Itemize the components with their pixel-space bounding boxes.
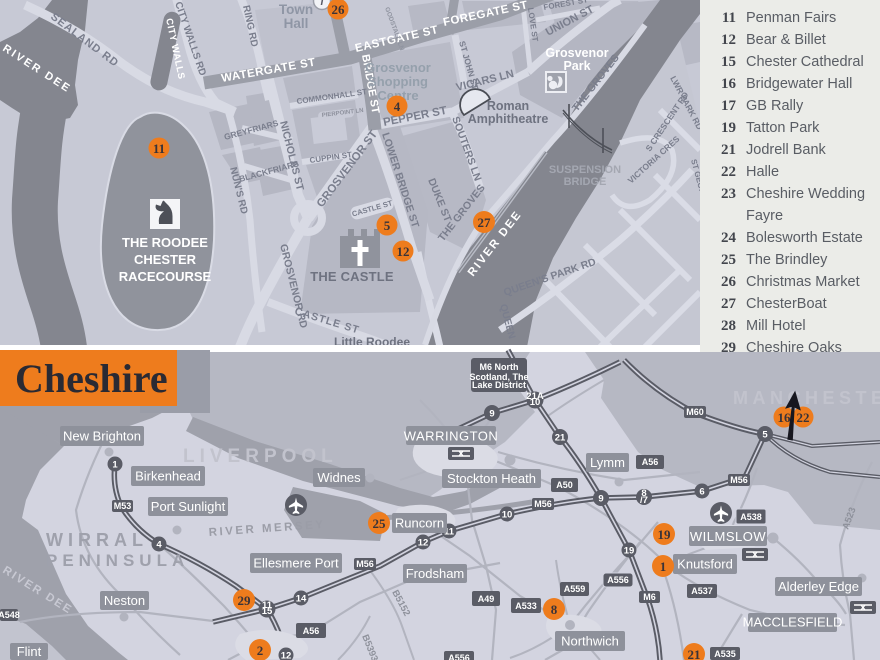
svg-text:The Brindley: The Brindley bbox=[746, 252, 828, 268]
svg-text:Tatton Park: Tatton Park bbox=[746, 120, 820, 136]
svg-text:THE ROODEE: THE ROODEE bbox=[122, 235, 208, 250]
svg-text:9: 9 bbox=[489, 409, 494, 420]
svg-text:4: 4 bbox=[394, 99, 401, 114]
svg-text:1: 1 bbox=[660, 559, 667, 574]
svg-text:5: 5 bbox=[384, 218, 391, 233]
svg-text:19: 19 bbox=[624, 546, 635, 557]
svg-text:A556: A556 bbox=[607, 575, 629, 585]
svg-text:Ellesmere Port: Ellesmere Port bbox=[253, 556, 339, 571]
svg-text:Bear & Billet: Bear & Billet bbox=[746, 32, 826, 48]
svg-text:WILMSLOW: WILMSLOW bbox=[690, 529, 766, 544]
svg-text:A548: A548 bbox=[0, 610, 20, 620]
svg-text:Bridgewater Hall: Bridgewater Hall bbox=[746, 76, 852, 92]
svg-text:Amphitheatre: Amphitheatre bbox=[468, 112, 549, 126]
svg-text:26: 26 bbox=[332, 2, 346, 17]
svg-text:4: 4 bbox=[156, 540, 162, 551]
svg-text:12: 12 bbox=[721, 32, 736, 48]
svg-text:M56: M56 bbox=[730, 475, 748, 485]
svg-text:15: 15 bbox=[262, 606, 273, 617]
svg-text:A49: A49 bbox=[478, 594, 495, 604]
svg-text:14: 14 bbox=[296, 594, 307, 605]
svg-text:6: 6 bbox=[699, 487, 704, 498]
svg-text:A56: A56 bbox=[303, 626, 320, 636]
svg-text:24: 24 bbox=[721, 230, 737, 246]
svg-text:Chester Cathedral: Chester Cathedral bbox=[746, 54, 864, 70]
svg-text:11: 11 bbox=[153, 141, 165, 156]
svg-text:Hall: Hall bbox=[284, 16, 309, 31]
svg-text:Frodsham: Frodsham bbox=[406, 566, 465, 581]
svg-text:Halle: Halle bbox=[746, 164, 779, 180]
svg-text:Birkenhead: Birkenhead bbox=[135, 469, 201, 484]
svg-text:Grosvenor: Grosvenor bbox=[545, 46, 608, 60]
svg-text:Christmas Market: Christmas Market bbox=[746, 274, 860, 290]
svg-text:Neston: Neston bbox=[104, 593, 145, 608]
svg-text:19: 19 bbox=[658, 527, 672, 542]
svg-text:M6 North: M6 North bbox=[480, 362, 519, 372]
svg-text:RACECOURSE: RACECOURSE bbox=[119, 269, 212, 284]
svg-text:MACCLESFIELD: MACCLESFIELD bbox=[743, 615, 843, 630]
svg-text:A56: A56 bbox=[642, 457, 659, 467]
svg-text:Shopping: Shopping bbox=[368, 74, 428, 89]
svg-text:GB Rally: GB Rally bbox=[746, 98, 804, 114]
svg-text:A535: A535 bbox=[714, 649, 736, 659]
svg-text:23: 23 bbox=[721, 186, 736, 202]
svg-text:10: 10 bbox=[502, 510, 513, 521]
svg-text:A538: A538 bbox=[740, 512, 762, 522]
svg-text:28: 28 bbox=[721, 318, 736, 334]
svg-text:M60: M60 bbox=[686, 407, 704, 417]
svg-text:10: 10 bbox=[530, 397, 541, 408]
svg-text:Fayre: Fayre bbox=[746, 208, 783, 224]
svg-text:LIVERPOOL: LIVERPOOL bbox=[183, 446, 338, 467]
svg-text:Town: Town bbox=[279, 2, 313, 17]
svg-text:A533: A533 bbox=[515, 601, 537, 611]
svg-text:15: 15 bbox=[721, 54, 736, 70]
svg-text:M56: M56 bbox=[356, 559, 374, 569]
svg-text:2: 2 bbox=[257, 643, 264, 658]
svg-text:16: 16 bbox=[721, 76, 737, 92]
svg-text:22: 22 bbox=[797, 410, 810, 425]
svg-text:25: 25 bbox=[721, 252, 736, 268]
svg-text:BRIDGE: BRIDGE bbox=[564, 176, 607, 188]
svg-text:12: 12 bbox=[397, 244, 410, 259]
svg-text:21: 21 bbox=[555, 433, 566, 444]
svg-text:27: 27 bbox=[478, 215, 492, 230]
svg-text:A559: A559 bbox=[564, 584, 586, 594]
svg-text:SUSPENSION: SUSPENSION bbox=[549, 164, 621, 176]
svg-text:8: 8 bbox=[551, 602, 558, 617]
svg-text:29: 29 bbox=[238, 593, 252, 608]
svg-text:12: 12 bbox=[281, 651, 292, 660]
svg-text:26: 26 bbox=[721, 274, 737, 290]
svg-text:Widnes: Widnes bbox=[317, 470, 361, 485]
svg-text:Penman Fairs: Penman Fairs bbox=[746, 10, 836, 26]
svg-text:Runcorn: Runcorn bbox=[395, 516, 444, 531]
svg-text:WIRRAL: WIRRAL bbox=[46, 530, 148, 550]
svg-text:Northwich: Northwich bbox=[561, 634, 619, 649]
svg-text:5: 5 bbox=[762, 430, 768, 441]
svg-text:Lymm: Lymm bbox=[590, 455, 625, 470]
svg-text:19: 19 bbox=[721, 120, 736, 136]
svg-text:Grosvenor: Grosvenor bbox=[365, 60, 431, 75]
svg-text:Roman: Roman bbox=[487, 99, 529, 113]
svg-text:21: 21 bbox=[721, 142, 736, 158]
svg-text:Bolesworth Estate: Bolesworth Estate bbox=[746, 230, 863, 246]
svg-text:Flint: Flint bbox=[17, 644, 42, 659]
svg-text:Park: Park bbox=[563, 59, 590, 73]
svg-text:25: 25 bbox=[373, 516, 387, 531]
svg-text:New Brighton: New Brighton bbox=[63, 429, 141, 444]
svg-text:Lake District: Lake District bbox=[472, 380, 526, 390]
svg-text:Port Sunlight: Port Sunlight bbox=[151, 499, 226, 514]
svg-text:A50: A50 bbox=[556, 480, 573, 490]
svg-text:THE CASTLE: THE CASTLE bbox=[310, 269, 394, 284]
svg-text:/7: /7 bbox=[640, 495, 648, 506]
svg-text:17: 17 bbox=[721, 98, 737, 114]
svg-text:16: 16 bbox=[778, 410, 792, 425]
svg-text:ChesterBoat: ChesterBoat bbox=[746, 296, 827, 312]
svg-text:1: 1 bbox=[112, 460, 118, 471]
svg-text:PENINSULA: PENINSULA bbox=[46, 551, 189, 570]
svg-text:CHESTER: CHESTER bbox=[134, 252, 197, 267]
svg-text:A537: A537 bbox=[691, 586, 713, 596]
svg-text:Stockton Heath: Stockton Heath bbox=[447, 471, 536, 486]
svg-text:A556: A556 bbox=[448, 653, 470, 660]
svg-text:Knutsford: Knutsford bbox=[677, 557, 733, 572]
svg-text:21: 21 bbox=[688, 647, 701, 660]
svg-text:9: 9 bbox=[598, 494, 603, 505]
svg-text:Mill Hotel: Mill Hotel bbox=[746, 318, 806, 334]
svg-text:22: 22 bbox=[721, 164, 736, 180]
svg-text:Alderley Edge: Alderley Edge bbox=[778, 579, 859, 594]
svg-text:27: 27 bbox=[721, 296, 737, 312]
svg-text:M6: M6 bbox=[643, 592, 656, 602]
svg-text:Jodrell Bank: Jodrell Bank bbox=[746, 142, 827, 158]
svg-text:Cheshire: Cheshire bbox=[15, 356, 168, 401]
svg-text:WARRINGTON: WARRINGTON bbox=[404, 429, 499, 444]
svg-text:M56: M56 bbox=[534, 499, 552, 509]
svg-text:Cheshire Wedding: Cheshire Wedding bbox=[746, 186, 865, 202]
svg-text:MANCHESTER: MANCHESTER bbox=[733, 388, 880, 408]
svg-text:12: 12 bbox=[418, 538, 429, 549]
svg-text:11: 11 bbox=[722, 10, 736, 26]
svg-text:M53: M53 bbox=[114, 501, 132, 511]
